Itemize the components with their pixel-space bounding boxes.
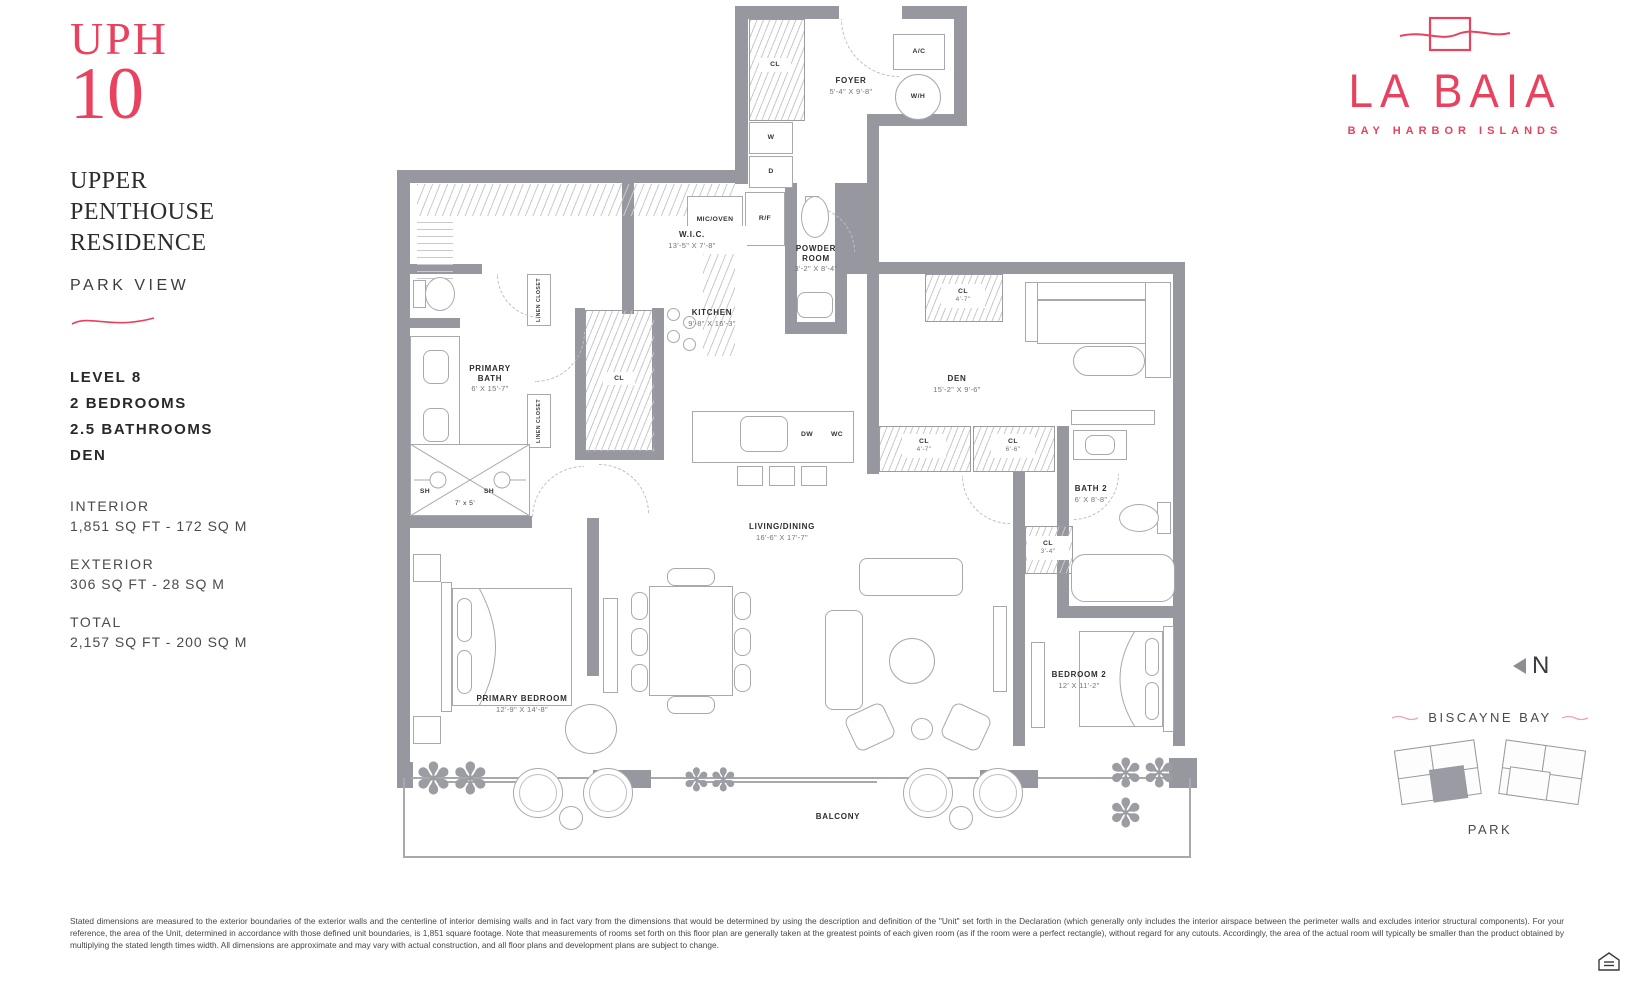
room-name: BALCONY (793, 812, 883, 822)
spec-den: DEN (70, 443, 350, 469)
residence-title: UPPER PENTHOUSE RESIDENCE (70, 166, 240, 258)
dining-chair (734, 664, 751, 692)
nightstand (413, 554, 441, 582)
den-closet-label: CL4'-7" (941, 284, 985, 308)
room-label-powder: POWDER ROOM 3'-2" x 8'-4" (787, 244, 845, 273)
balcony-edge (403, 856, 1191, 858)
view-label: PARK VIEW (70, 277, 350, 295)
spec-bathrooms: 2.5 BATHROOMS (70, 417, 350, 443)
cl-label: CL6'-6" (1006, 438, 1021, 454)
hall-closet-b-label: CL6'-6" (991, 434, 1035, 458)
dishwasher-label: DW (795, 431, 819, 439)
room-name: LIVING/DINING (707, 522, 857, 532)
room-dims: 13'-5" x 7'-8" (668, 241, 715, 250)
room-dims: 5'-4" x 9'-8" (805, 87, 897, 96)
room-label-bedroom2: BEDROOM 2 12' x 11'-2" (1033, 670, 1125, 690)
floor-plan: CL CL CL4'-7" CL4'-7" CL6'-6" CL3'-4" LI… (397, 6, 1197, 864)
room-label-balcony: BALCONY (793, 812, 883, 822)
bath2-toilet (1119, 504, 1159, 532)
den-console (1071, 410, 1155, 425)
linen-closet-label: LINEN CLOSET (536, 399, 542, 443)
hall-closet-a-label: CL4'-7" (902, 434, 946, 458)
room-name: POWDER ROOM (787, 244, 845, 263)
ac-unit: A/C (893, 34, 945, 70)
cooktop-burner (683, 338, 696, 351)
refrigerator: R/F (745, 192, 785, 246)
dryer-label: D (768, 168, 773, 176)
interior-measure: INTERIOR 1,851 SQ FT - 172 SQ M (70, 498, 350, 534)
bar-stool (769, 466, 795, 486)
room-dims: 12'-9" x 14'-8" (437, 705, 607, 714)
room-label-foyer: FOYER 5'-4" x 9'-8" (805, 76, 897, 96)
balcony-table (559, 806, 583, 830)
equal-housing-icon (1598, 952, 1620, 972)
bedroom2-closet-label: CL3'-4" (1027, 536, 1069, 560)
room-label-den: DEN 15'-2" x 9'-6" (902, 374, 1012, 394)
door-swing (497, 274, 541, 318)
room-label-wic: W.I.C. 13'-5" x 7'-8" (668, 230, 715, 250)
floorplan-page: { "sidebar": { "unit_prefix": "UPH", "un… (0, 0, 1636, 1000)
compass-n-label: N (1532, 652, 1550, 680)
brand-name: LA BAIA (1340, 65, 1570, 119)
balcony-chair-cushion (909, 774, 947, 812)
bath-sink (423, 350, 449, 384)
primary-bed-headboard (441, 582, 452, 712)
living-side-table (911, 718, 933, 740)
bar-stool (801, 466, 827, 486)
total-value: 2,157 SQ FT - 200 SQ M (70, 634, 350, 650)
brand-tagline: BAY HARBOR ISLANDS (1340, 125, 1570, 137)
cl-label: CL4'-7" (917, 438, 932, 454)
room-dims: 12' x 11'-2" (1033, 681, 1125, 690)
exterior-measure: EXTERIOR 306 SQ FT - 28 SQ M (70, 556, 350, 592)
living-coffee-table (889, 638, 935, 684)
spec-level: LEVEL 8 (70, 365, 350, 391)
ac-label: A/C (913, 48, 926, 56)
plant-icon: ✽✽✽ (1109, 754, 1176, 834)
balcony-chair-cushion (589, 774, 627, 812)
total-label: TOTAL (70, 614, 350, 630)
dining-chair (734, 592, 751, 620)
dining-chair (734, 628, 751, 656)
bed-pillow (457, 598, 472, 642)
living-console (993, 606, 1007, 692)
shower-head-label: SH (413, 488, 437, 496)
spec-block: LEVEL 8 2 BEDROOMS 2.5 BATHROOMS DEN (70, 365, 350, 470)
room-dims: 9'-8" x 16'-3" (657, 319, 767, 328)
shower-dims: 7' x 5' (445, 500, 485, 508)
den-chaise (1145, 282, 1171, 378)
washer-label: W (768, 134, 775, 142)
bed-blanket-icon (477, 588, 517, 706)
room-name: PRIMARY BATH (459, 364, 521, 383)
washer: W (749, 122, 793, 154)
wave-icon (1562, 714, 1588, 722)
mic-oven-label: MIC/OVEN (697, 216, 734, 224)
wall-segment (785, 322, 847, 334)
refrigerator-label: R/F (759, 215, 771, 223)
hall-closet-label: CL (603, 372, 635, 385)
cooktop-burner (667, 330, 680, 343)
unit-number: 10 (70, 60, 350, 128)
wall-segment (397, 170, 748, 183)
powder-sink (797, 292, 833, 318)
compass-arrow-icon (1512, 657, 1528, 675)
brand-logo: LA BAIA BAY HARBOR ISLANDS (1340, 12, 1570, 137)
dining-table (649, 586, 733, 696)
room-label-bath2: BATH 2 6' x 8'-8" (1059, 484, 1123, 504)
wall-segment (1173, 262, 1185, 746)
bar-stool (737, 466, 763, 486)
room-name: BATH 2 (1059, 484, 1123, 494)
exterior-value: 306 SQ FT - 28 SQ M (70, 576, 350, 592)
spec-bedrooms: 2 BEDROOMS (70, 391, 350, 417)
balcony-chair-cushion (979, 774, 1017, 812)
bed-pillow (1145, 638, 1159, 676)
wine-cooler-label: WC (825, 431, 849, 439)
foyer-closet-label: CL (759, 58, 791, 72)
room-name: FOYER (805, 76, 897, 86)
dining-chair (667, 568, 715, 586)
room-label-wic-box: W.I.C. 13'-5" x 7'-8" (637, 226, 747, 254)
balcony-edge (1189, 778, 1191, 858)
room-label-primary-bath: PRIMARY BATH 6' x 15'-7" (459, 364, 521, 393)
wave-divider-icon (70, 310, 156, 332)
wall-segment (954, 6, 967, 126)
balcony-edge (403, 778, 405, 858)
linen-closet: LINEN CLOSET (527, 394, 551, 448)
room-dims: 6' x 8'-8" (1059, 495, 1123, 504)
bed-pillow (457, 650, 472, 694)
wall-segment (397, 170, 410, 776)
balcony-table (949, 806, 973, 830)
keyplan: BISCAYNE BAY PARK (1380, 710, 1600, 837)
bay-label: BISCAYNE BAY (1428, 710, 1551, 725)
nightstand (413, 716, 441, 744)
wall-segment (575, 308, 585, 460)
room-name: PRIMARY BEDROOM (437, 694, 607, 704)
dining-chair (631, 628, 648, 656)
shower-head-label: SH (477, 488, 501, 496)
wall-segment (1057, 606, 1185, 618)
wall-segment (1013, 472, 1025, 746)
room-label-primary-bedroom: PRIMARY BEDROOM 12'-9" x 14'-8" (437, 694, 607, 714)
bath2-sink (1085, 435, 1115, 455)
living-sofa (859, 558, 963, 596)
room-label-living: LIVING/DINING 16'-6" x 17'-7" (707, 522, 857, 542)
total-measure: TOTAL 2,157 SQ FT - 200 SQ M (70, 614, 350, 650)
wall-segment (410, 318, 460, 328)
wall-segment (587, 518, 599, 676)
bed2-headboard (1163, 626, 1174, 732)
cl-label: CL3'-4" (1041, 540, 1056, 556)
cl-label: CL4'-7" (956, 288, 971, 304)
plant-icon: ✽✽ (415, 758, 489, 802)
living-loveseat (825, 610, 863, 710)
balcony-chair-cushion (519, 774, 557, 812)
water-heater: W/H (895, 74, 941, 120)
room-name: BEDROOM 2 (1033, 670, 1125, 680)
wall-segment (735, 6, 748, 184)
room-dims: 6' x 15'-7" (459, 384, 521, 393)
keyplan-buildings-icon (1390, 733, 1590, 811)
island-sink (740, 416, 788, 452)
dining-chair (631, 664, 648, 692)
powder-toilet (801, 196, 829, 238)
living-console (603, 598, 618, 693)
door-swing (599, 464, 649, 514)
door-swing (962, 476, 1010, 524)
door-swing (532, 466, 584, 518)
dining-chair (667, 696, 715, 714)
bed-pillow (1145, 682, 1159, 720)
park-label: PARK (1380, 822, 1600, 837)
compass: N (1512, 652, 1550, 680)
room-dims: 15'-2" x 9'-6" (902, 385, 1012, 394)
wall-segment (847, 183, 867, 274)
room-name: DEN (902, 374, 1012, 384)
room-dims: 3'-2" x 8'-4" (787, 264, 845, 273)
dryer: D (749, 156, 793, 188)
den-sofa-seat (1037, 300, 1159, 344)
cl-label: CL (770, 61, 780, 69)
wall-segment (1057, 426, 1069, 618)
cl-label: CL (614, 375, 624, 383)
room-label-kitchen: KITCHEN 9'-8" x 16'-3" (657, 308, 767, 328)
wave-icon (1392, 714, 1418, 722)
wall-segment (735, 6, 839, 19)
bath2-toilet-tank (1157, 502, 1171, 534)
bath-sink (423, 408, 449, 442)
room-name: W.I.C. (668, 230, 715, 240)
wall-pier (397, 762, 413, 788)
den-sofa-back (1037, 282, 1159, 300)
door-swing (841, 19, 899, 77)
bath2-tub (1071, 554, 1175, 602)
brand-mark-icon (1340, 12, 1570, 60)
plant-icon: ✽✽ (683, 764, 737, 796)
interior-value: 1,851 SQ FT - 172 SQ M (70, 518, 350, 534)
room-dims: 16'-6" x 17'-7" (707, 533, 857, 542)
dining-chair (631, 592, 648, 620)
disclaimer-text: Stated dimensions are measured to the ex… (70, 916, 1564, 951)
water-heater-label: W/H (911, 93, 925, 101)
wall-segment (867, 114, 879, 274)
wall-segment (867, 262, 879, 474)
interior-label: INTERIOR (70, 498, 350, 514)
living-accent-chair (939, 701, 993, 753)
unit-identifier: UPH 10 (70, 18, 350, 128)
wall-segment (410, 516, 532, 528)
den-coffee-table (1073, 346, 1145, 376)
room-name: KITCHEN (657, 308, 767, 318)
bath-toilet (425, 277, 455, 311)
sidebar: UPH 10 UPPER PENTHOUSE RESIDENCE PARK VI… (70, 18, 350, 672)
exterior-label: EXTERIOR (70, 556, 350, 572)
wall-segment (879, 262, 1185, 274)
